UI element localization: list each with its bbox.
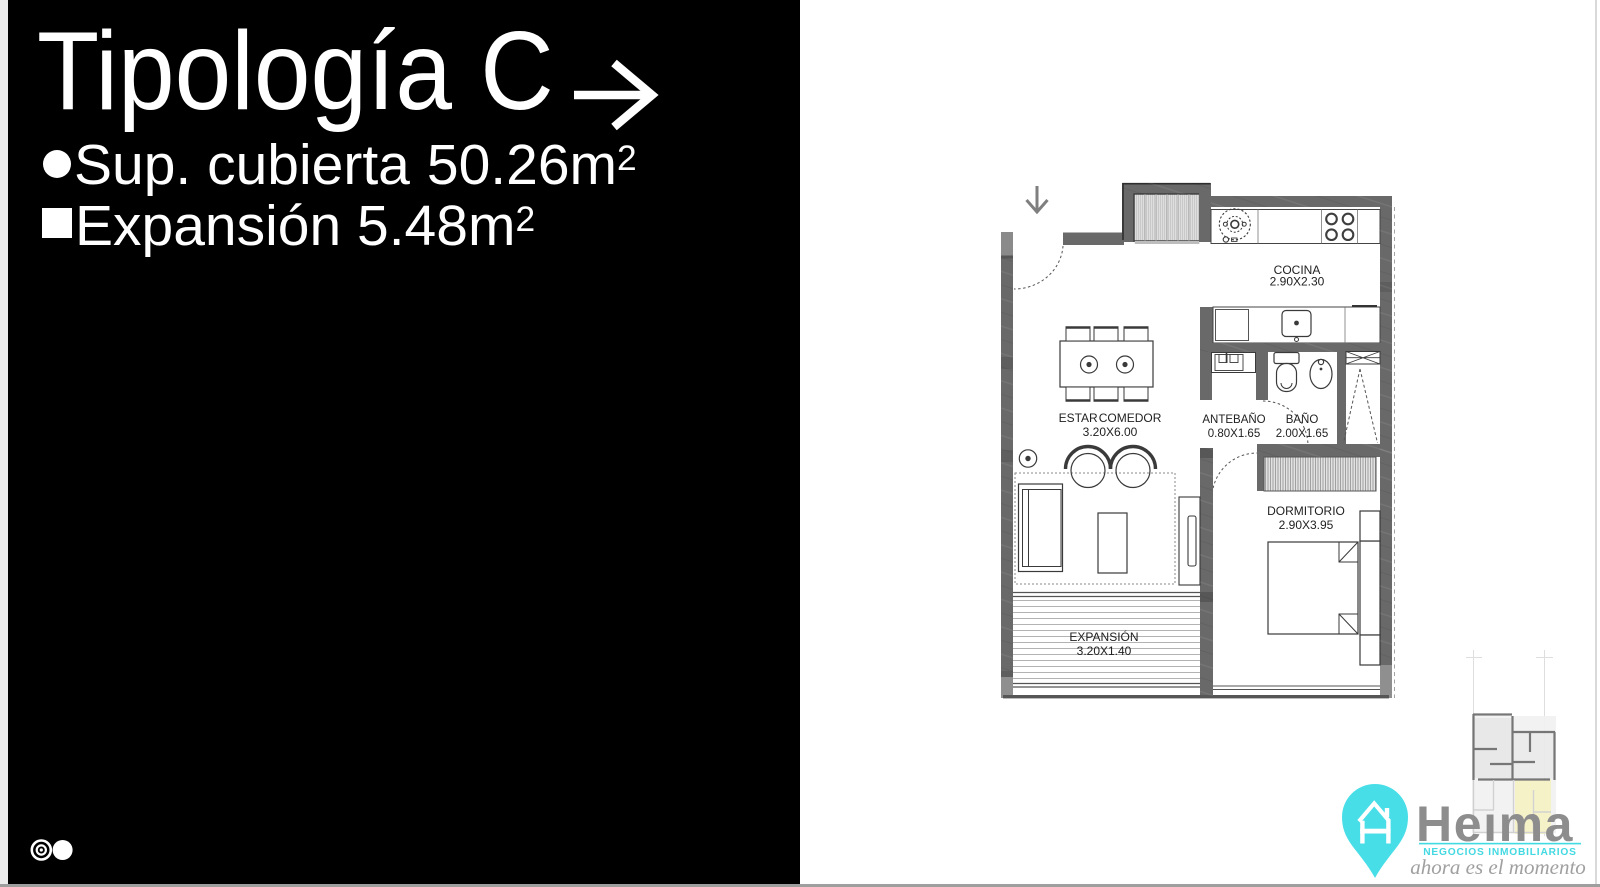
svg-text:0.80X1.65: 0.80X1.65 [1208,428,1260,440]
svg-text:3.20X6.00: 3.20X6.00 [1083,425,1138,439]
svg-text:3.20X1.40: 3.20X1.40 [1077,644,1132,658]
svg-text:2.90X3.95: 2.90X3.95 [1279,518,1334,532]
svg-text:EXPANSIÓN: EXPANSIÓN [1069,629,1138,644]
svg-text:ahora es el momento: ahora es el momento [1410,855,1586,879]
svg-text:2.00X1.65: 2.00X1.65 [1276,428,1328,440]
svg-text:ANTEBAÑO: ANTEBAÑO [1202,413,1265,426]
svg-text:2.90X2.30: 2.90X2.30 [1270,275,1325,289]
svg-text:DORMITORIO: DORMITORIO [1267,504,1345,518]
svg-text:BAÑO: BAÑO [1286,413,1319,426]
svg-text:ESTAR COMEDOR: ESTAR COMEDOR [1059,411,1162,425]
